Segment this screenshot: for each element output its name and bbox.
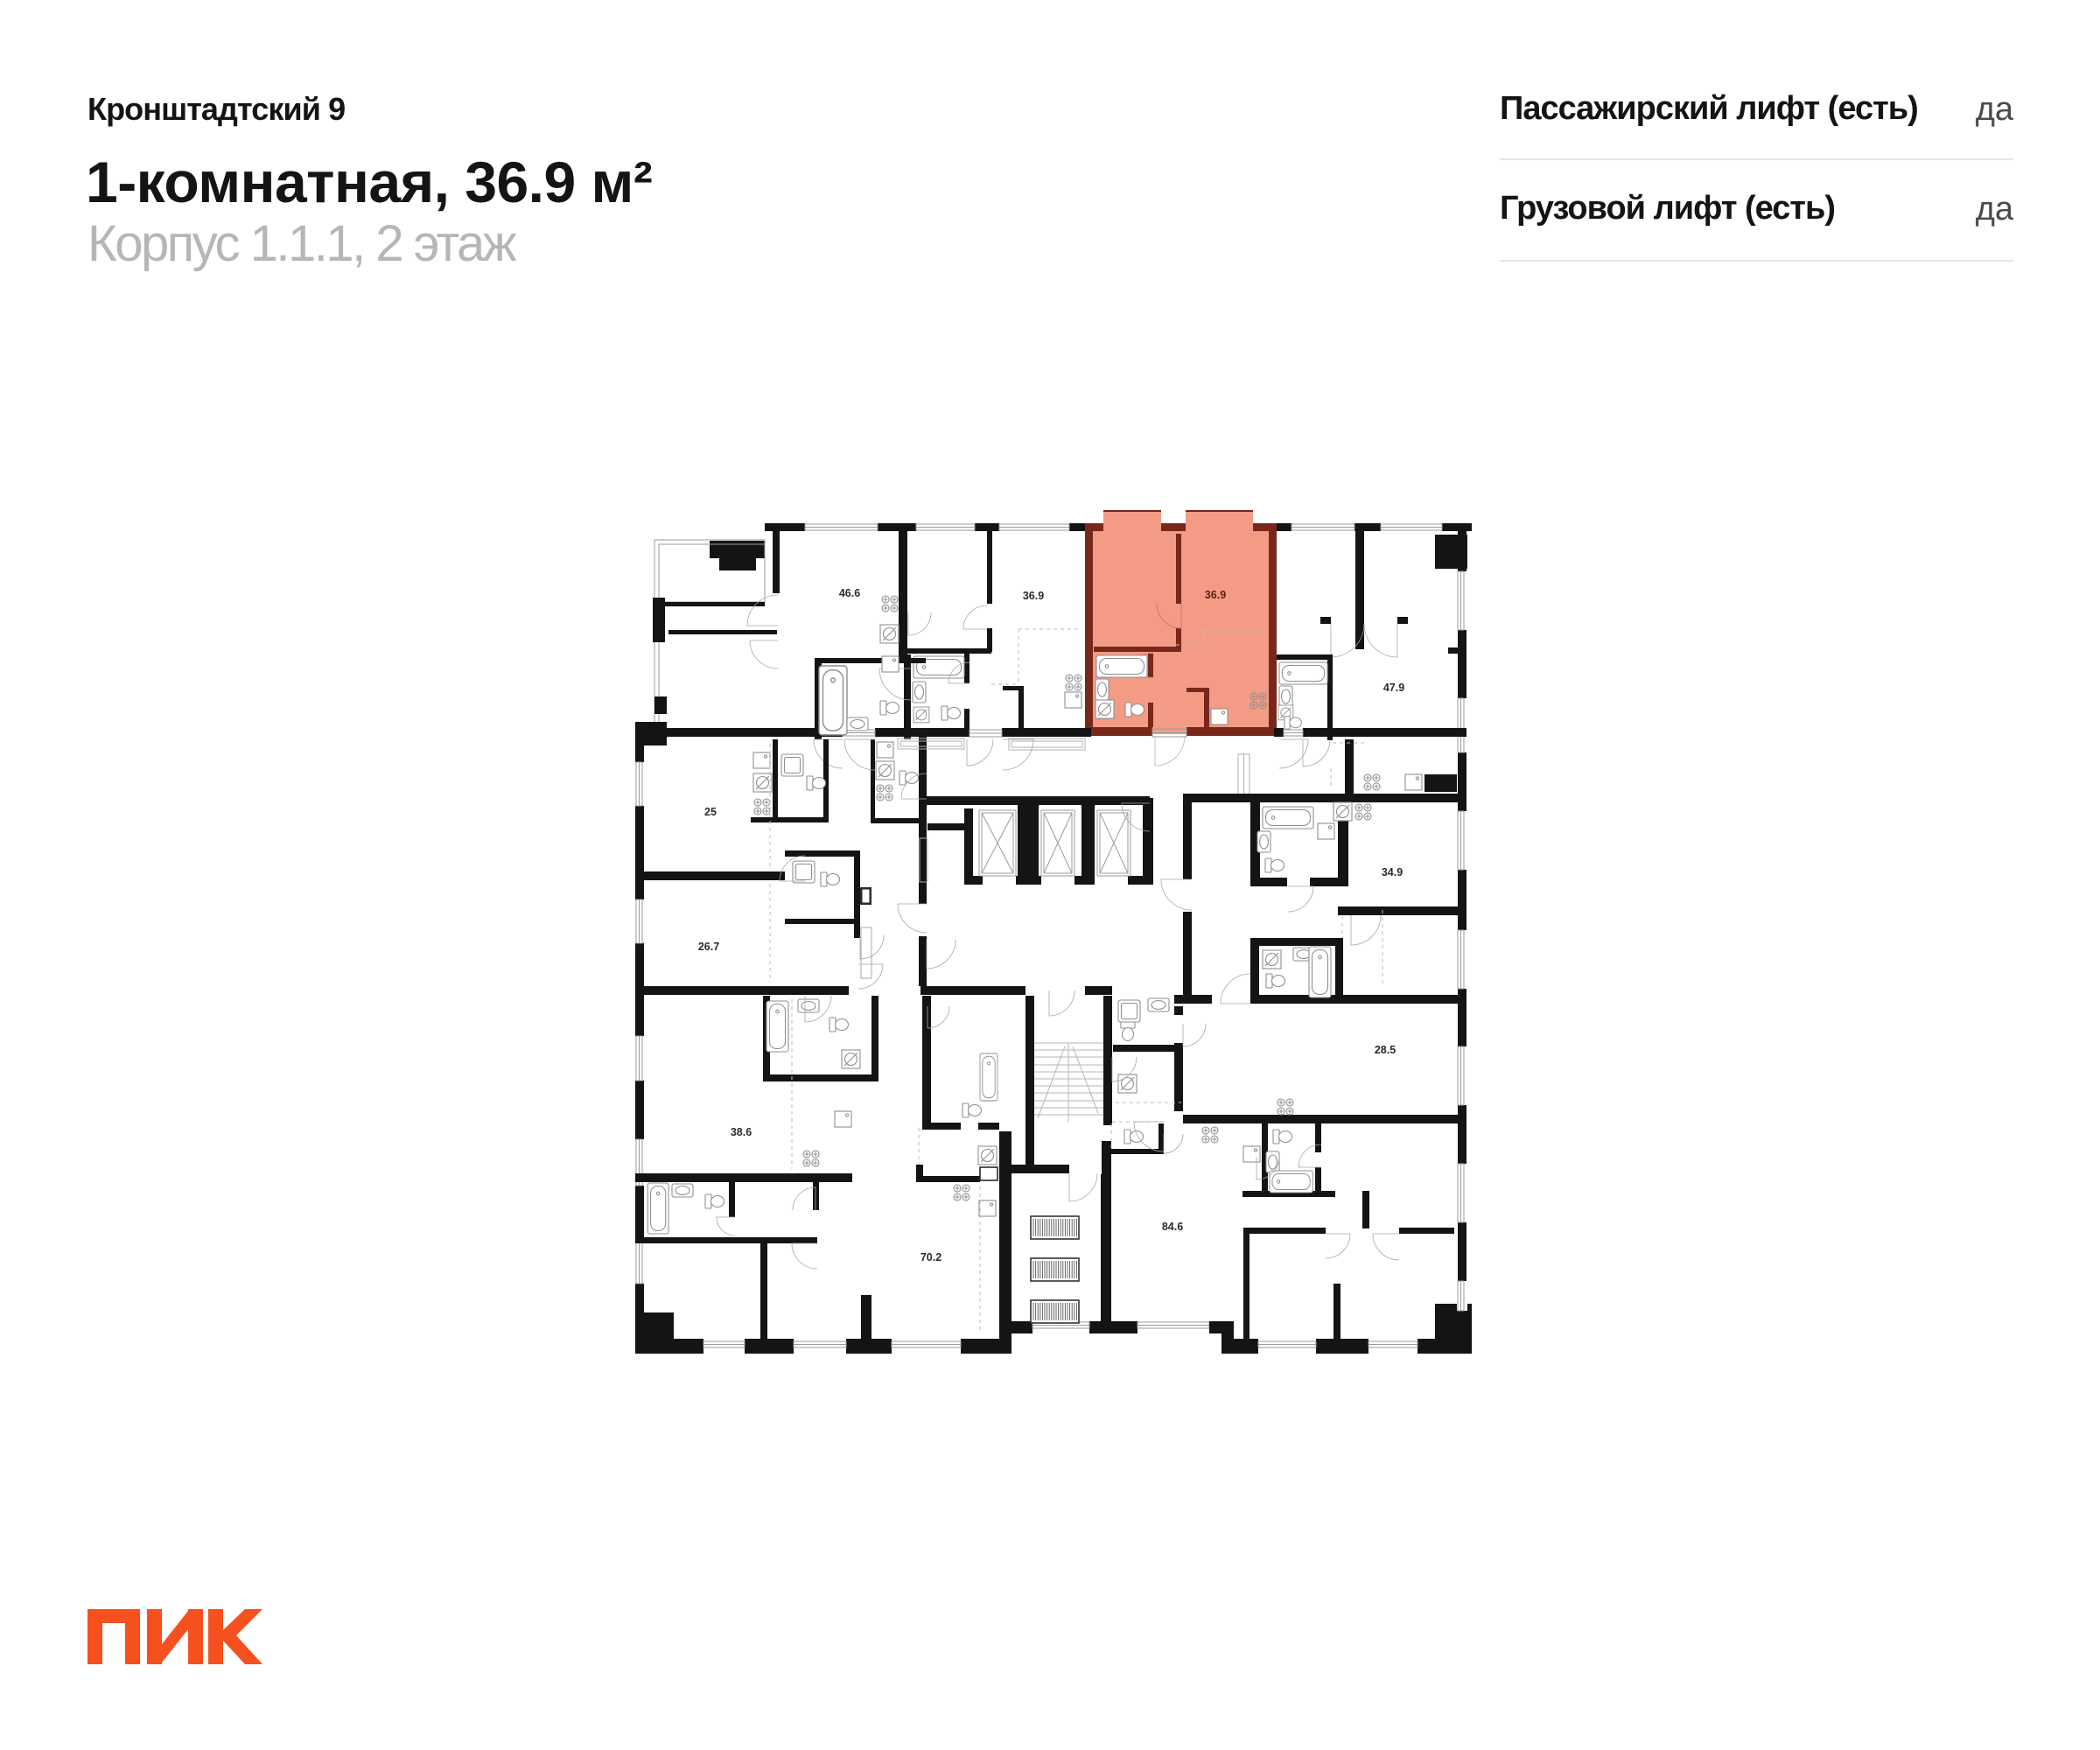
svg-text:46.6: 46.6	[839, 587, 860, 599]
svg-text:84.6: 84.6	[1162, 1221, 1183, 1233]
svg-text:70.2: 70.2	[920, 1251, 941, 1263]
svg-text:47.9: 47.9	[1383, 682, 1404, 694]
svg-text:36.9: 36.9	[1023, 590, 1044, 602]
svg-text:36.9: 36.9	[1205, 589, 1226, 601]
svg-text:34.9: 34.9	[1382, 866, 1403, 878]
svg-text:25: 25	[704, 806, 717, 818]
svg-text:26.7: 26.7	[698, 941, 719, 953]
svg-text:38.6: 38.6	[731, 1126, 752, 1138]
svg-text:28.5: 28.5	[1375, 1044, 1396, 1056]
